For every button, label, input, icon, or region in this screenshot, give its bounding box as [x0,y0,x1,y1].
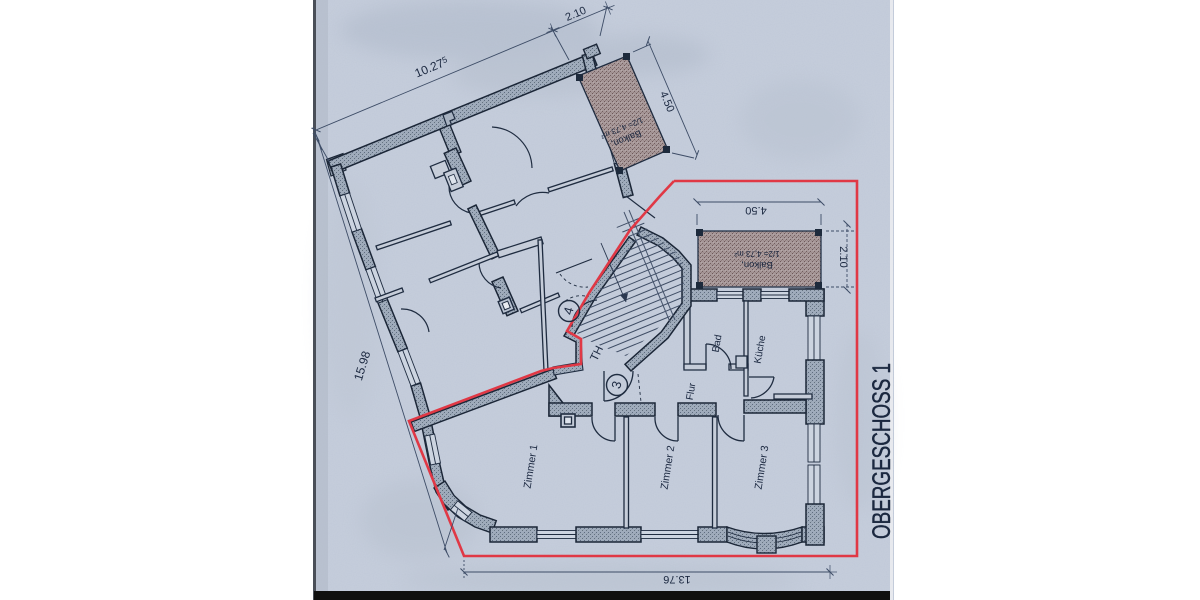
svg-text:Balkon,: Balkon, [741,259,773,270]
svg-text:4.50: 4.50 [745,204,766,216]
svg-text:2.10: 2.10 [837,246,849,267]
svg-text:OBERGESCHOSS 1: OBERGESCHOSS 1 [868,363,896,539]
svg-text:1/2= 4,73 m²: 1/2= 4,73 m² [734,249,779,258]
svg-text:13.76: 13.76 [663,573,691,585]
